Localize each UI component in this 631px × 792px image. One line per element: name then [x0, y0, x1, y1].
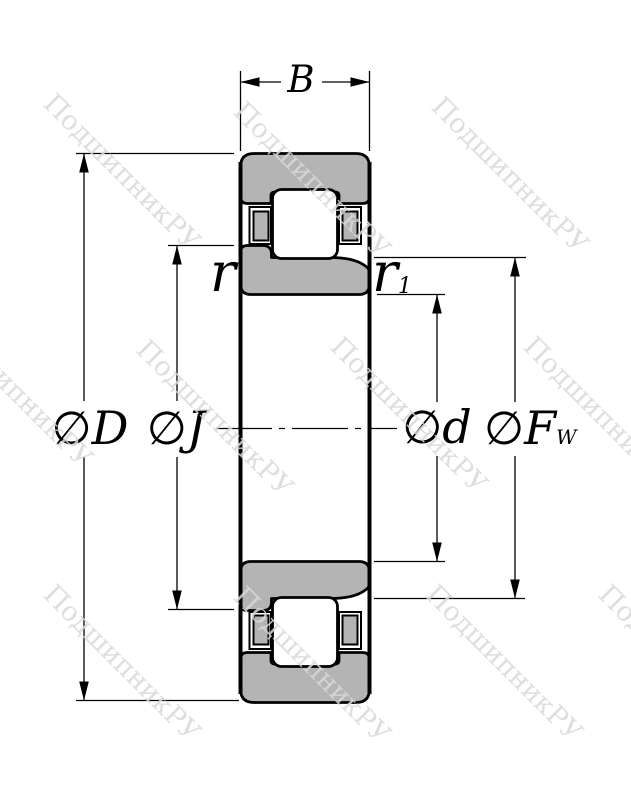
watermark-text: ПодшипникРУ — [592, 579, 631, 748]
arrowhead-right-icon — [351, 77, 370, 87]
arrowhead-down-icon — [172, 591, 182, 610]
arrowhead-up-icon — [510, 258, 520, 277]
bearing-diagram: B ∅D ∅J — [0, 0, 631, 792]
cage-bar-top-left — [254, 212, 269, 241]
label-chamfer-r: r — [210, 241, 239, 304]
arrowhead-down-icon — [510, 580, 520, 599]
watermark-text: ПодшипникРУ — [37, 579, 206, 748]
label-width-B: B — [286, 58, 314, 101]
arrowhead-down-icon — [79, 682, 89, 701]
watermark-text: ПодшипникРУ — [425, 91, 594, 260]
watermark-text: ПодшипникРУ — [419, 579, 588, 748]
arrowhead-left-icon — [241, 77, 260, 87]
arrowhead-up-icon — [432, 295, 442, 314]
arrowhead-down-icon — [432, 543, 442, 562]
label-raceway-diameter: ∅FW — [484, 401, 578, 455]
diagram-canvas: B ∅D ∅J — [0, 0, 631, 792]
watermark-text: ПодшипникРУ — [37, 88, 206, 257]
cage-bar-bottom-right — [343, 616, 358, 645]
